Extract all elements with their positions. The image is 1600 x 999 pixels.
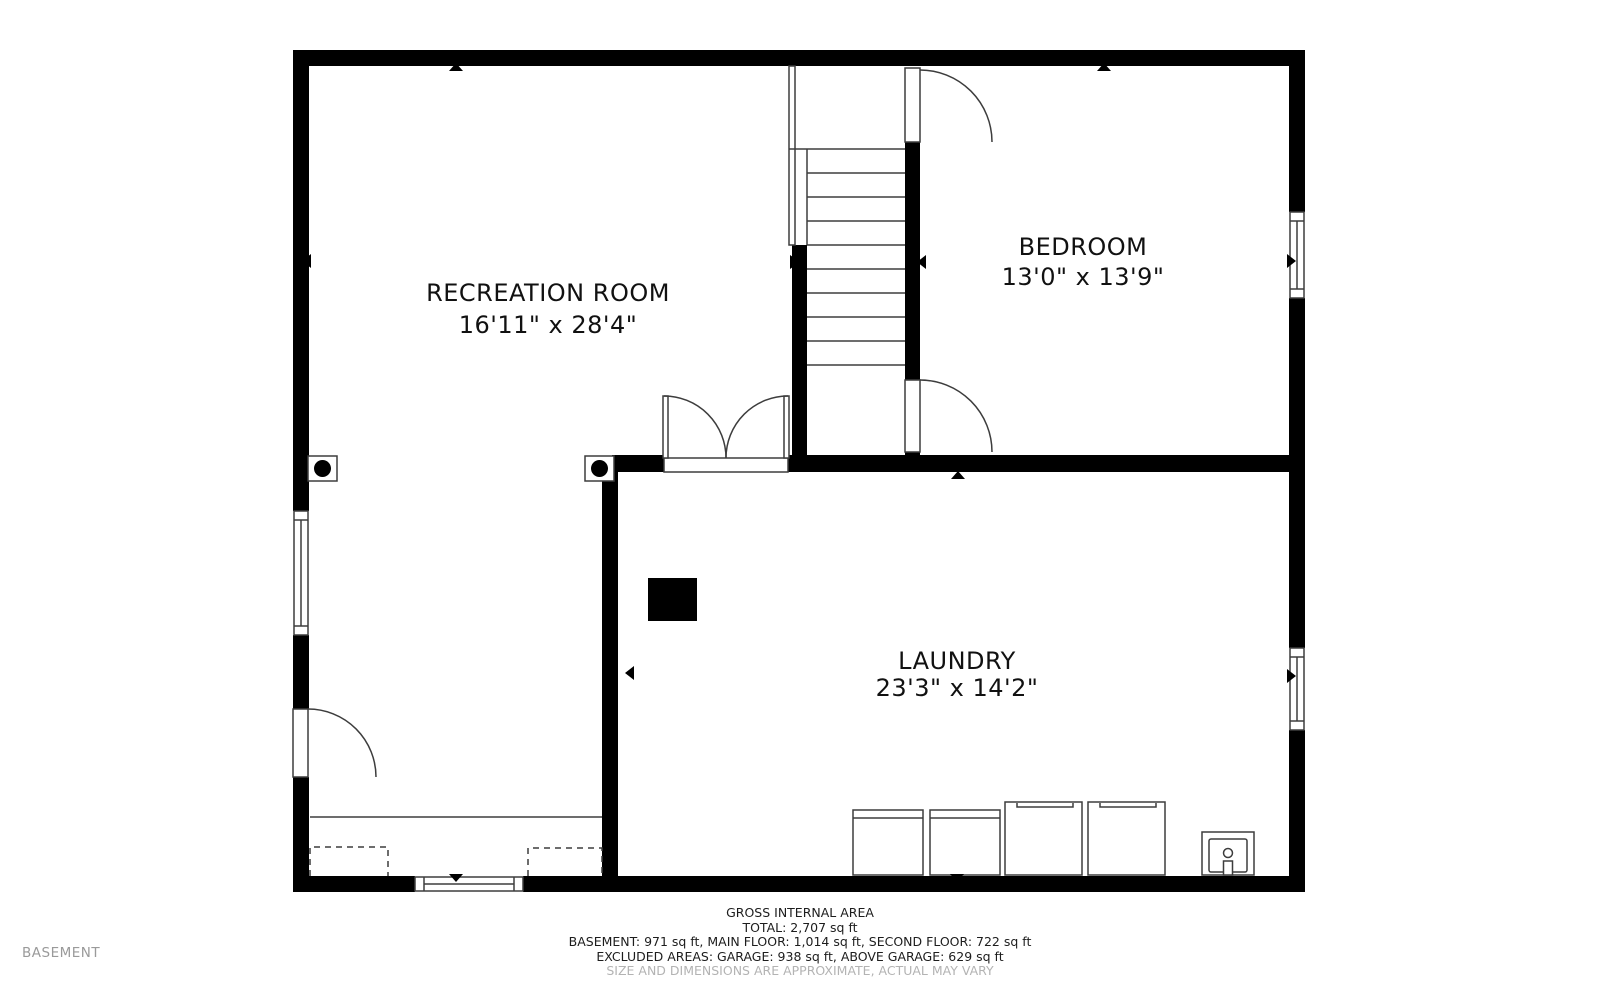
door-stair-bottom-to-bedroom (905, 380, 992, 452)
laundry-name: LAUNDRY (876, 648, 1039, 675)
double-door-rec-to-laundry (663, 396, 789, 472)
washer-2 (930, 810, 1000, 875)
rec-room-builtins (310, 817, 602, 876)
marker-laundry-top (951, 471, 965, 479)
wall-right-mid (1289, 298, 1305, 648)
storage-dashed-right (528, 848, 602, 876)
column-left (308, 456, 337, 481)
wall-bottom-right (523, 876, 1305, 892)
area-summary: GROSS INTERNAL AREA TOTAL: 2,707 sq ft B… (350, 906, 1250, 979)
recreation-room-dimensions: 16'11" x 28'4" (426, 309, 670, 341)
appliances (853, 802, 1254, 875)
floorplan-page: RECREATION ROOM 16'11" x 28'4" BEDROOM 1… (0, 0, 1600, 999)
area-summary-floors: BASEMENT: 971 sq ft, MAIN FLOOR: 1,014 s… (350, 935, 1250, 950)
wall-stair-left (792, 245, 807, 472)
wall-bottom-left (293, 876, 415, 892)
washer-1 (853, 810, 923, 875)
laundry-dimensions: 23'3" x 14'2" (876, 675, 1039, 702)
column-center (585, 456, 614, 481)
storage-dashed-left (310, 847, 388, 876)
wall-markers (302, 63, 1296, 882)
floor-name-tag: BASEMENT (22, 945, 100, 961)
wall-top (293, 50, 1305, 66)
basement-floorplan-drawing (0, 0, 1600, 999)
area-summary-title: GROSS INTERNAL AREA (350, 906, 1250, 921)
wall-left-upper (293, 50, 309, 511)
area-summary-total: TOTAL: 2,707 sq ft (350, 921, 1250, 936)
bedroom-dimensions: 13'0" x 13'9" (1002, 262, 1165, 292)
window-left-wall (294, 511, 308, 635)
bedroom-name: BEDROOM (1002, 232, 1165, 262)
door-exterior-left (293, 709, 376, 777)
wall-mid-right-segment (788, 455, 1289, 472)
wall-left-lower (293, 777, 309, 892)
dryer-2 (1088, 802, 1165, 875)
wall-stair-right (905, 142, 920, 380)
area-summary-disclaimer: SIZE AND DIMENSIONS ARE APPROXIMATE, ACT… (350, 964, 1250, 979)
wall-right-lower (1289, 730, 1305, 892)
wall-stair-right-stub (905, 452, 920, 472)
wall-mid-left-segment (612, 455, 664, 472)
window-bottom-wall (415, 877, 523, 891)
wall-laundry-left (602, 472, 618, 876)
window-bedroom-right (1290, 212, 1304, 298)
columns (308, 456, 614, 481)
interior-walls (602, 142, 1289, 876)
utility-sink (1202, 832, 1254, 875)
furnace (648, 578, 697, 621)
wall-right-upper (1289, 50, 1305, 212)
bedroom-label: BEDROOM 13'0" x 13'9" (1002, 232, 1165, 292)
marker-laundry-left (625, 666, 634, 680)
window-laundry-right (1290, 648, 1304, 730)
stair-railing (789, 66, 795, 245)
dryer-1 (1005, 802, 1082, 875)
recreation-room-name: RECREATION ROOM (426, 277, 670, 309)
recreation-room-label: RECREATION ROOM 16'11" x 28'4" (426, 277, 670, 341)
wall-left-mid (293, 635, 309, 709)
door-stair-top-to-bedroom (905, 68, 992, 142)
laundry-label: LAUNDRY 23'3" x 14'2" (876, 648, 1039, 702)
area-summary-excluded: EXCLUDED AREAS: GARAGE: 938 sq ft, ABOVE… (350, 950, 1250, 965)
